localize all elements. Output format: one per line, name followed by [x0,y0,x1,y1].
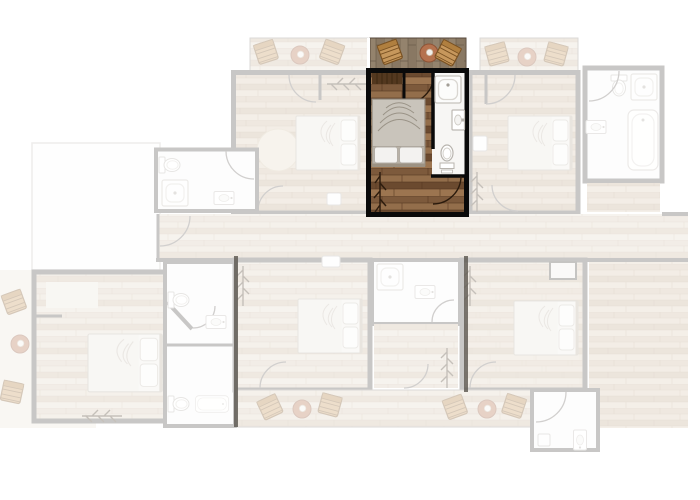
highlighted-unit[interactable] [367,38,467,215]
chair-icon [544,42,568,66]
toilet-icon [159,157,180,173]
washbasin-icon [574,430,587,450]
lower-balconies [237,390,532,427]
corridor [156,214,688,260]
wardrobe [372,73,402,84]
wall-cabinet [473,136,487,151]
pillow [400,147,423,163]
wardrobe [46,282,98,308]
bathroom-upper-left[interactable] [156,150,257,212]
round-table-icon [420,44,438,62]
shower-icon [631,74,657,100]
shower-icon [435,76,461,103]
double-bed-icon [88,334,162,392]
round-table-icon [293,400,311,418]
chair-icon [485,42,509,66]
shower-icon [377,264,403,290]
double-bed-icon [296,116,360,170]
toilet-icon [611,75,627,96]
open-floor-area [589,262,688,428]
room-lower-left[interactable] [34,272,167,422]
bathroom-lower-right[interactable] [532,390,598,450]
bathroom-upper-right[interactable] [585,68,662,212]
toilet-icon [168,396,189,412]
chair-icon [318,393,342,417]
faded-floor-context [0,38,688,450]
bathtub-icon [628,110,658,170]
room-upper-right[interactable] [470,73,578,214]
headboard [372,164,425,168]
round-rug [257,129,299,171]
bathroom-mid-column[interactable] [165,262,235,426]
double-bed-icon [298,299,362,353]
balcony-divider [367,38,370,71]
room-lower-middle[interactable] [235,256,370,390]
roof-terrace [32,143,160,270]
floor-plan [0,0,700,500]
pillow [375,147,398,163]
shower-icon [162,180,188,206]
round-table-icon [11,335,29,353]
bathtub-icon [196,396,229,413]
balcony-upper-right [480,38,578,71]
round-table-icon [478,400,496,418]
washbasin-icon [415,286,435,299]
cabinet [538,434,550,446]
washbasin-icon [452,110,465,130]
wall-item [322,256,340,267]
floor-plan-canvas [0,0,700,500]
washbasin-icon [586,121,606,134]
double-bed-icon [508,116,572,170]
round-table-icon [518,48,536,66]
chair-icon [0,380,24,404]
room-lower-right[interactable] [372,260,585,390]
wall-item [327,193,341,205]
highlighted-balcony[interactable] [367,38,466,71]
shower-cabinet [550,262,576,279]
washbasin-icon [206,316,226,329]
toilet-icon [168,292,189,308]
double-bed-icon [514,301,578,355]
washbasin-icon [214,192,234,205]
floor-patch [587,183,660,212]
highlighted-double-bed [372,99,425,167]
round-table-icon [291,46,309,64]
balcony-upper-left [250,38,368,71]
